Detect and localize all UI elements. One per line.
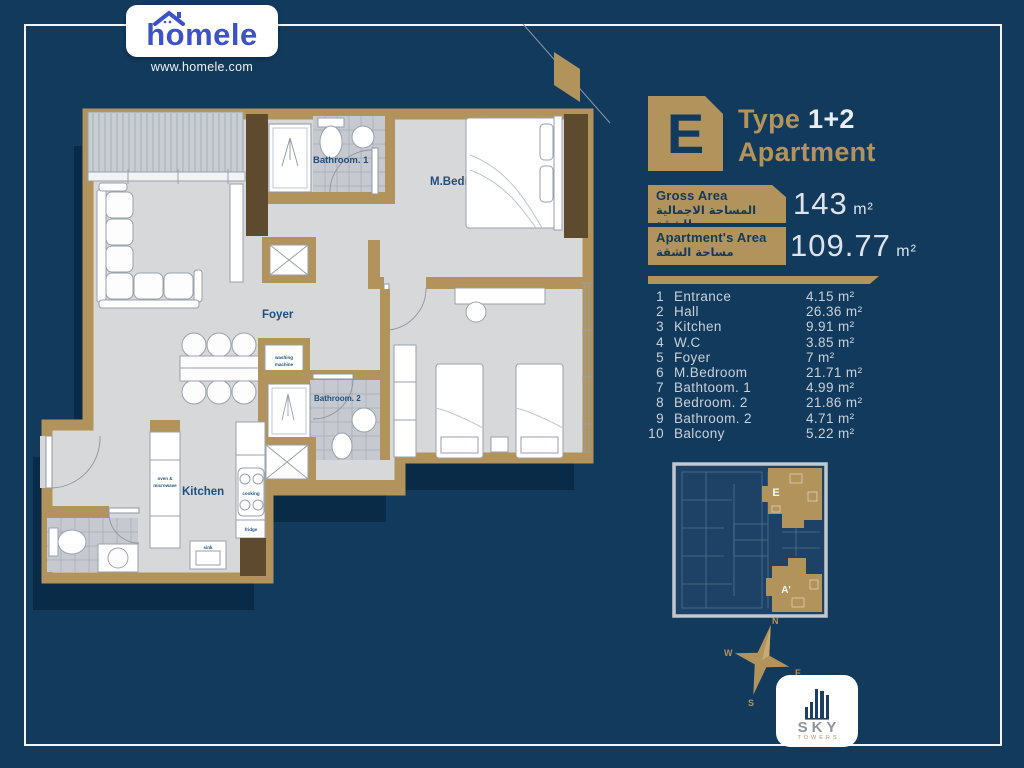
room-row: 7Bathtoom. 14.99 m² (648, 380, 898, 395)
unit-category: Apartment (738, 136, 876, 169)
room-row: 1Entrance4.15 m² (648, 289, 898, 304)
shaft-box-1 (262, 237, 316, 283)
fridge-label: fridge (245, 527, 258, 532)
apartment-area-label-ar: مساحة الشقة (656, 245, 786, 259)
apartment-area-value: 109.77 m² (790, 228, 917, 264)
tower-icon (797, 687, 837, 721)
room-row: 10Balcony5.22 m² (648, 426, 898, 441)
unit-type-label: Type (738, 104, 800, 134)
gross-area-value: 143 m² (793, 186, 874, 222)
washer-label-1: washing (274, 355, 293, 360)
key-plan-unit-e-label: E (772, 487, 779, 499)
compass-s: S (748, 698, 754, 708)
oven-label-2: microwave (153, 483, 177, 488)
gross-area-number: 143 (793, 186, 848, 221)
homele-logo[interactable]: homele (126, 5, 278, 57)
dining-table (180, 333, 264, 404)
compass-n: N (772, 616, 779, 626)
room-row: 4W.C3.85 m² (648, 335, 898, 350)
bathroom2-label: Bathroom. 2 (314, 394, 361, 403)
dark-shaft (246, 114, 268, 236)
website-link[interactable]: www.homele.com (126, 60, 278, 74)
list-divider-bar (648, 276, 879, 284)
key-plan-unit-a-label: A' (781, 585, 791, 596)
room-row: 3Kitchen9.91 m² (648, 319, 898, 334)
unit-title: Type 1+2 Apartment (738, 103, 876, 169)
sky-towers-logo: SKY TOWERS (776, 675, 858, 747)
oven-label-1: oven & (157, 476, 173, 481)
bathroom1-label: Bathroom. 1 (313, 155, 369, 166)
apartment-area-unit: m² (896, 243, 917, 260)
sky-name: SKY (798, 721, 841, 735)
hall-window (230, 184, 243, 282)
room-row: 2Hall26.36 m² (648, 304, 898, 319)
apartment-area-number: 109.77 (790, 228, 891, 263)
compass-w: W (724, 648, 733, 658)
washer-label-2: machine (275, 362, 294, 367)
room-list: 1Entrance4.15 m² 2Hall26.36 m² 3Kitchen9… (648, 289, 898, 441)
floor-plan: Bathroom. 1 M.Bedroom (0, 0, 660, 768)
cooking-label: cooking (242, 491, 260, 496)
room-row: 9Bathroom. 24.71 m² (648, 411, 898, 426)
gross-area-unit: m² (853, 201, 874, 218)
foyer-label: Foyer (262, 309, 294, 321)
angled-wall-decor (523, 24, 610, 123)
room-row: 8Bedroom. 221.86 m² (648, 395, 898, 410)
unit-type-value: 1+2 (808, 104, 855, 134)
sky-sub: TOWERS (797, 735, 839, 741)
gross-area-label-en: Gross Area (656, 188, 786, 203)
house-roof-icon (152, 10, 192, 26)
bathroom-1: Bathroom. 1 (268, 114, 395, 204)
unit-letter-badge: E (648, 96, 723, 171)
room-row: 5Foyer7 m² (648, 350, 898, 365)
kitchen-label: Kitchen (182, 486, 224, 498)
apartment-area-box: Apartment's Area مساحة الشقة (648, 227, 786, 265)
room-row: 6M.Bedroom21.71 m² (648, 365, 898, 380)
balcony (88, 112, 245, 184)
building-key-plan: E A' (672, 462, 828, 618)
gross-area-box: Gross Area المساحة الاجمالية للشقة (648, 185, 786, 223)
apartment-area-label-en: Apartment's Area (656, 230, 786, 245)
unit-letter: E (667, 106, 704, 162)
sink-label: sink (203, 545, 213, 550)
